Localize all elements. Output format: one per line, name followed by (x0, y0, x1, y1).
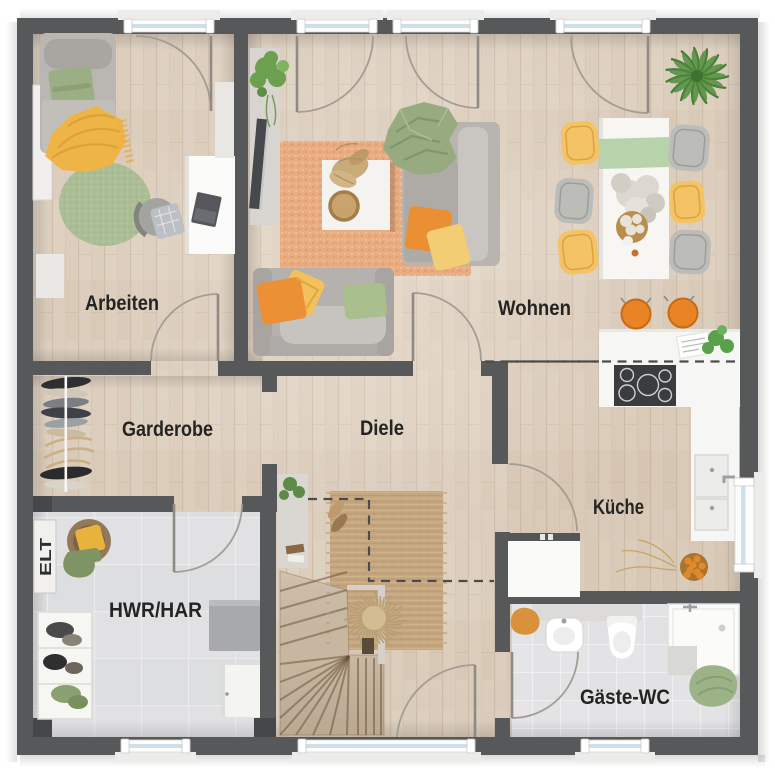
svg-text:HWR/HAR: HWR/HAR (109, 599, 202, 622)
svg-text:Gäste-WC: Gäste-WC (580, 686, 670, 709)
svg-text:Küche: Küche (593, 496, 644, 519)
svg-text:Wohnen: Wohnen (498, 297, 571, 320)
svg-text:Garderobe: Garderobe (122, 418, 213, 441)
svg-text:Diele: Diele (360, 417, 404, 440)
svg-text:Arbeiten: Arbeiten (85, 292, 159, 315)
svg-text:ELT: ELT (38, 538, 55, 576)
